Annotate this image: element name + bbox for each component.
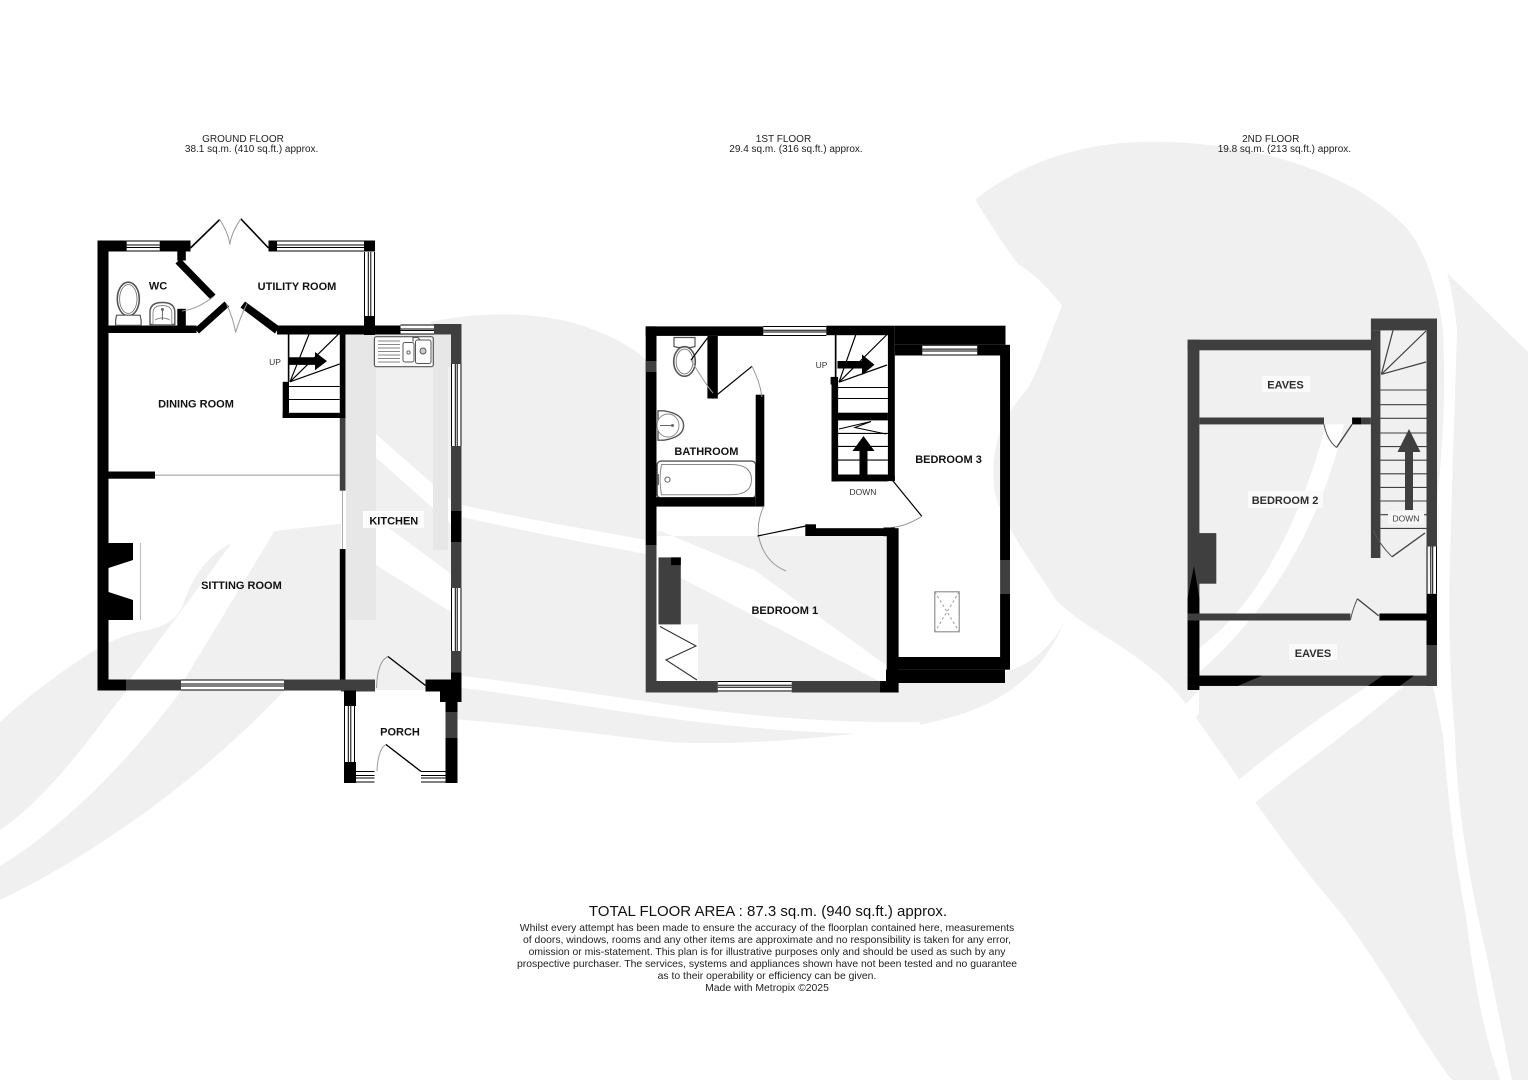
svg-text:UP: UP xyxy=(269,357,281,367)
svg-text:EAVES: EAVES xyxy=(1295,648,1331,660)
svg-text:WC: WC xyxy=(149,281,167,293)
svg-text:BEDROOM 2: BEDROOM 2 xyxy=(1252,495,1319,507)
svg-text:Whilst every attempt has been: Whilst every attempt has been made to en… xyxy=(520,923,1014,934)
svg-text:BEDROOM 1: BEDROOM 1 xyxy=(751,605,818,617)
svg-text:KITCHEN: KITCHEN xyxy=(369,516,418,528)
svg-text:DOWN: DOWN xyxy=(1393,514,1420,524)
svg-text:BATHROOM: BATHROOM xyxy=(674,446,738,458)
svg-text:DINING ROOM: DINING ROOM xyxy=(158,399,234,411)
svg-text:SITTING ROOM: SITTING ROOM xyxy=(201,580,282,592)
svg-text:BEDROOM 3: BEDROOM 3 xyxy=(915,454,982,466)
svg-text:prospective purchaser. The ser: prospective purchaser. The services, sys… xyxy=(517,959,1017,970)
svg-text:of doors, windows, rooms and a: of doors, windows, rooms and any other i… xyxy=(523,935,1011,946)
svg-text:UTILITY ROOM: UTILITY ROOM xyxy=(258,281,337,293)
svg-text:29.4 sq.m. (316 sq.ft.) approx: 29.4 sq.m. (316 sq.ft.) approx. xyxy=(729,144,862,155)
svg-text:UP: UP xyxy=(816,360,828,370)
svg-text:TOTAL FLOOR AREA : 87.3 sq.m.: TOTAL FLOOR AREA : 87.3 sq.m. (940 sq.ft… xyxy=(589,903,947,920)
svg-text:38.1 sq.m. (410 sq.ft.) approx: 38.1 sq.m. (410 sq.ft.) approx. xyxy=(185,144,318,155)
svg-text:PORCH: PORCH xyxy=(380,727,420,739)
svg-text:Made with Metropix ©2025: Made with Metropix ©2025 xyxy=(705,983,829,994)
svg-text:as to their operability or eff: as to their operability or efficiency ca… xyxy=(658,971,877,982)
svg-text:omission or mis-statement. Thi: omission or mis-statement. This plan is … xyxy=(529,947,1007,958)
svg-text:EAVES: EAVES xyxy=(1267,380,1303,392)
svg-text:19.8 sq.m. (213 sq.ft.) approx: 19.8 sq.m. (213 sq.ft.) approx. xyxy=(1218,144,1351,155)
svg-text:DOWN: DOWN xyxy=(850,487,877,497)
